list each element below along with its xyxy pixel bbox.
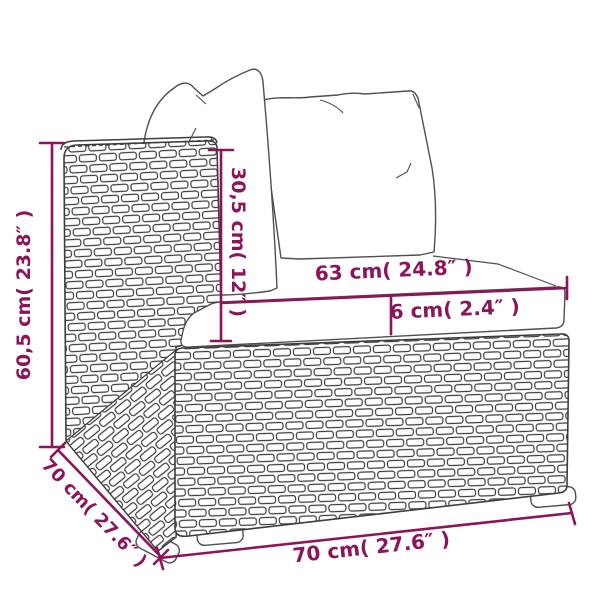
- right-back-pillow: [263, 91, 436, 259]
- backrest-height-label: 30,5 cm( 12″ ): [227, 167, 249, 317]
- product-diagram-canvas: 60,5 cm( 23.8″ ) 30,5 cm( 12″ ) 63 cm( 2…: [0, 0, 600, 600]
- overall-height-label: 60,5 cm( 23.8″ ): [13, 210, 35, 381]
- sofa-dimension-diagram: 60,5 cm( 23.8″ ) 30,5 cm( 12″ ) 63 cm( 2…: [0, 0, 600, 600]
